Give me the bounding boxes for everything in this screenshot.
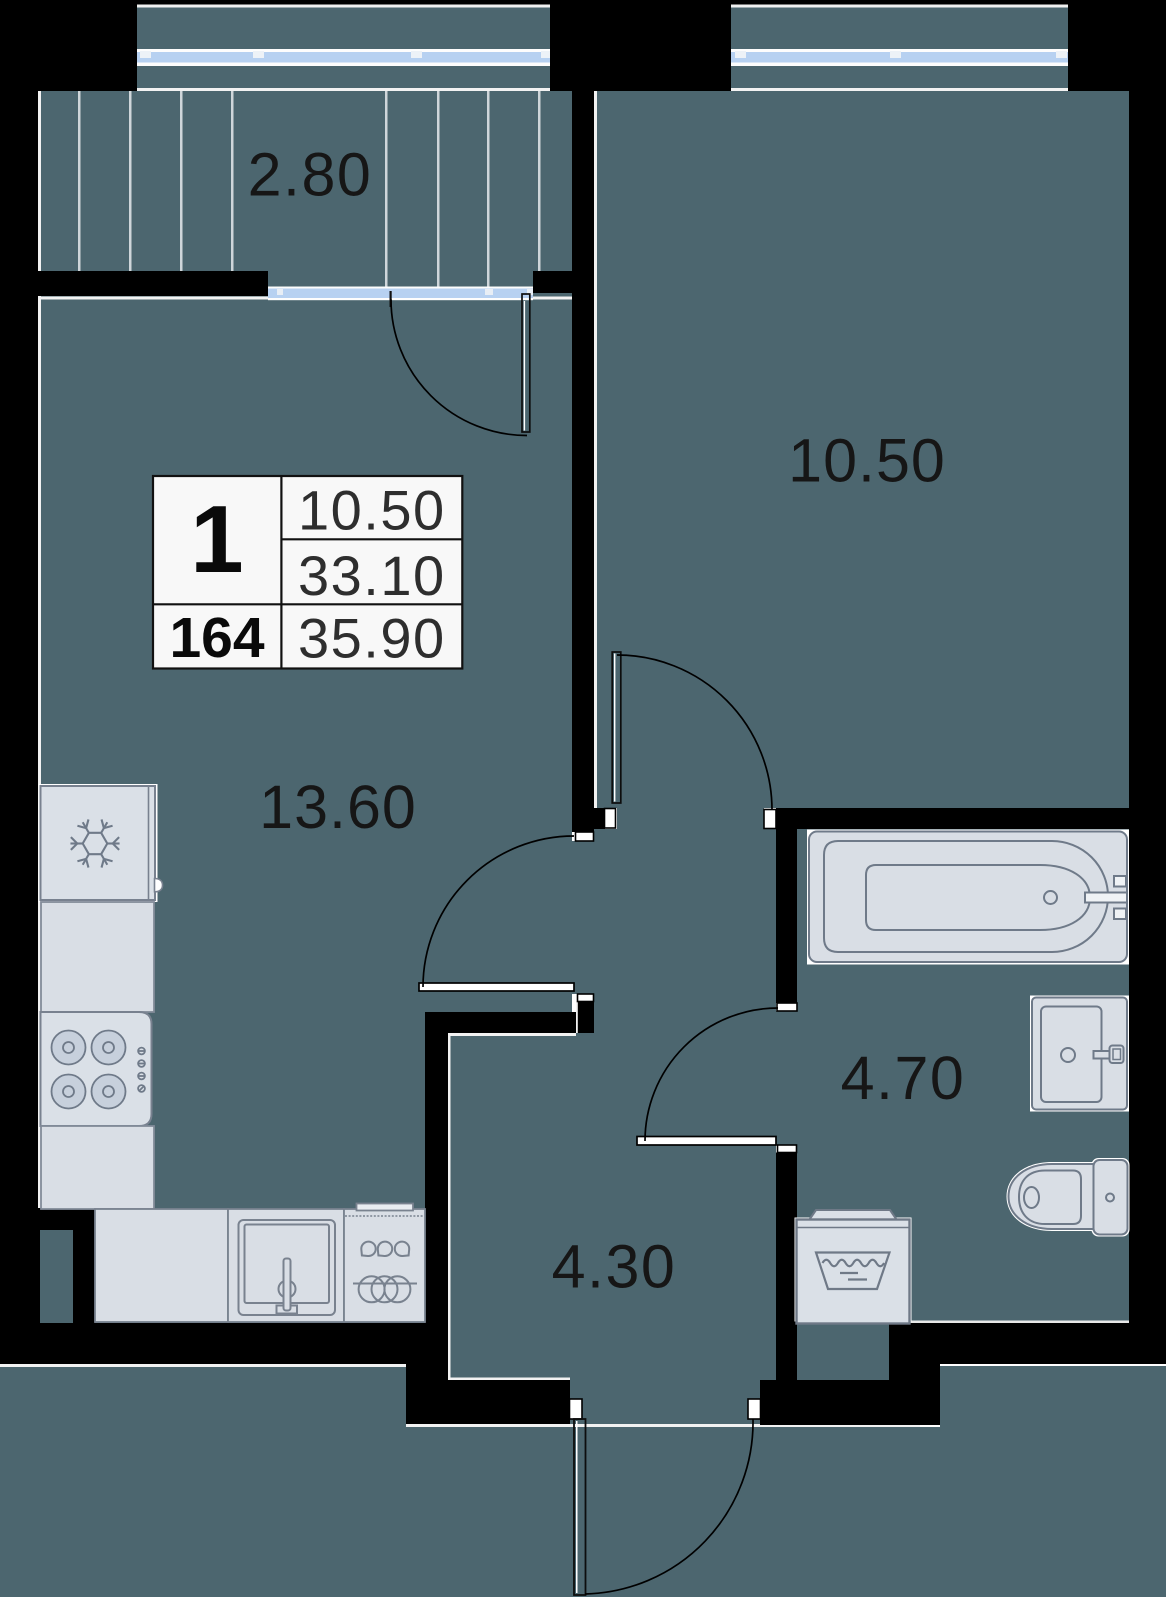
- svg-text:1: 1: [190, 486, 243, 593]
- svg-text:4.30: 4.30: [552, 1233, 677, 1301]
- svg-text:10.50: 10.50: [788, 427, 946, 495]
- svg-text:13.60: 13.60: [259, 773, 417, 841]
- svg-text:35.90: 35.90: [298, 607, 446, 670]
- svg-text:33.10: 33.10: [298, 544, 446, 607]
- svg-text:2.80: 2.80: [248, 141, 373, 209]
- svg-text:10.50: 10.50: [298, 479, 446, 542]
- svg-text:4.70: 4.70: [841, 1044, 966, 1112]
- svg-text:164: 164: [169, 606, 264, 670]
